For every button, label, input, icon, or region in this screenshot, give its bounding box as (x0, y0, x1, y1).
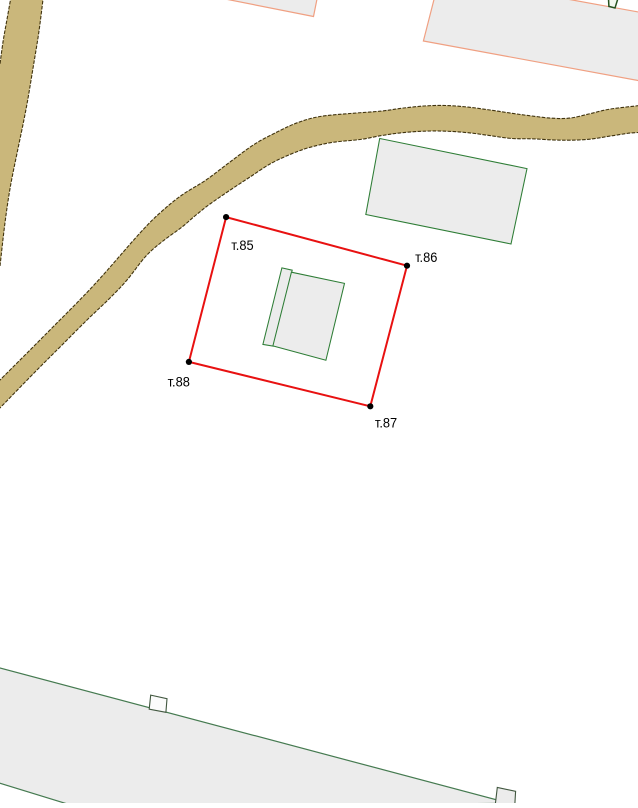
svg-text:т.85: т.85 (231, 237, 253, 253)
svg-text:т.87: т.87 (375, 415, 397, 431)
svg-text:т.86: т.86 (415, 249, 437, 265)
svg-text:т.88: т.88 (168, 373, 190, 389)
